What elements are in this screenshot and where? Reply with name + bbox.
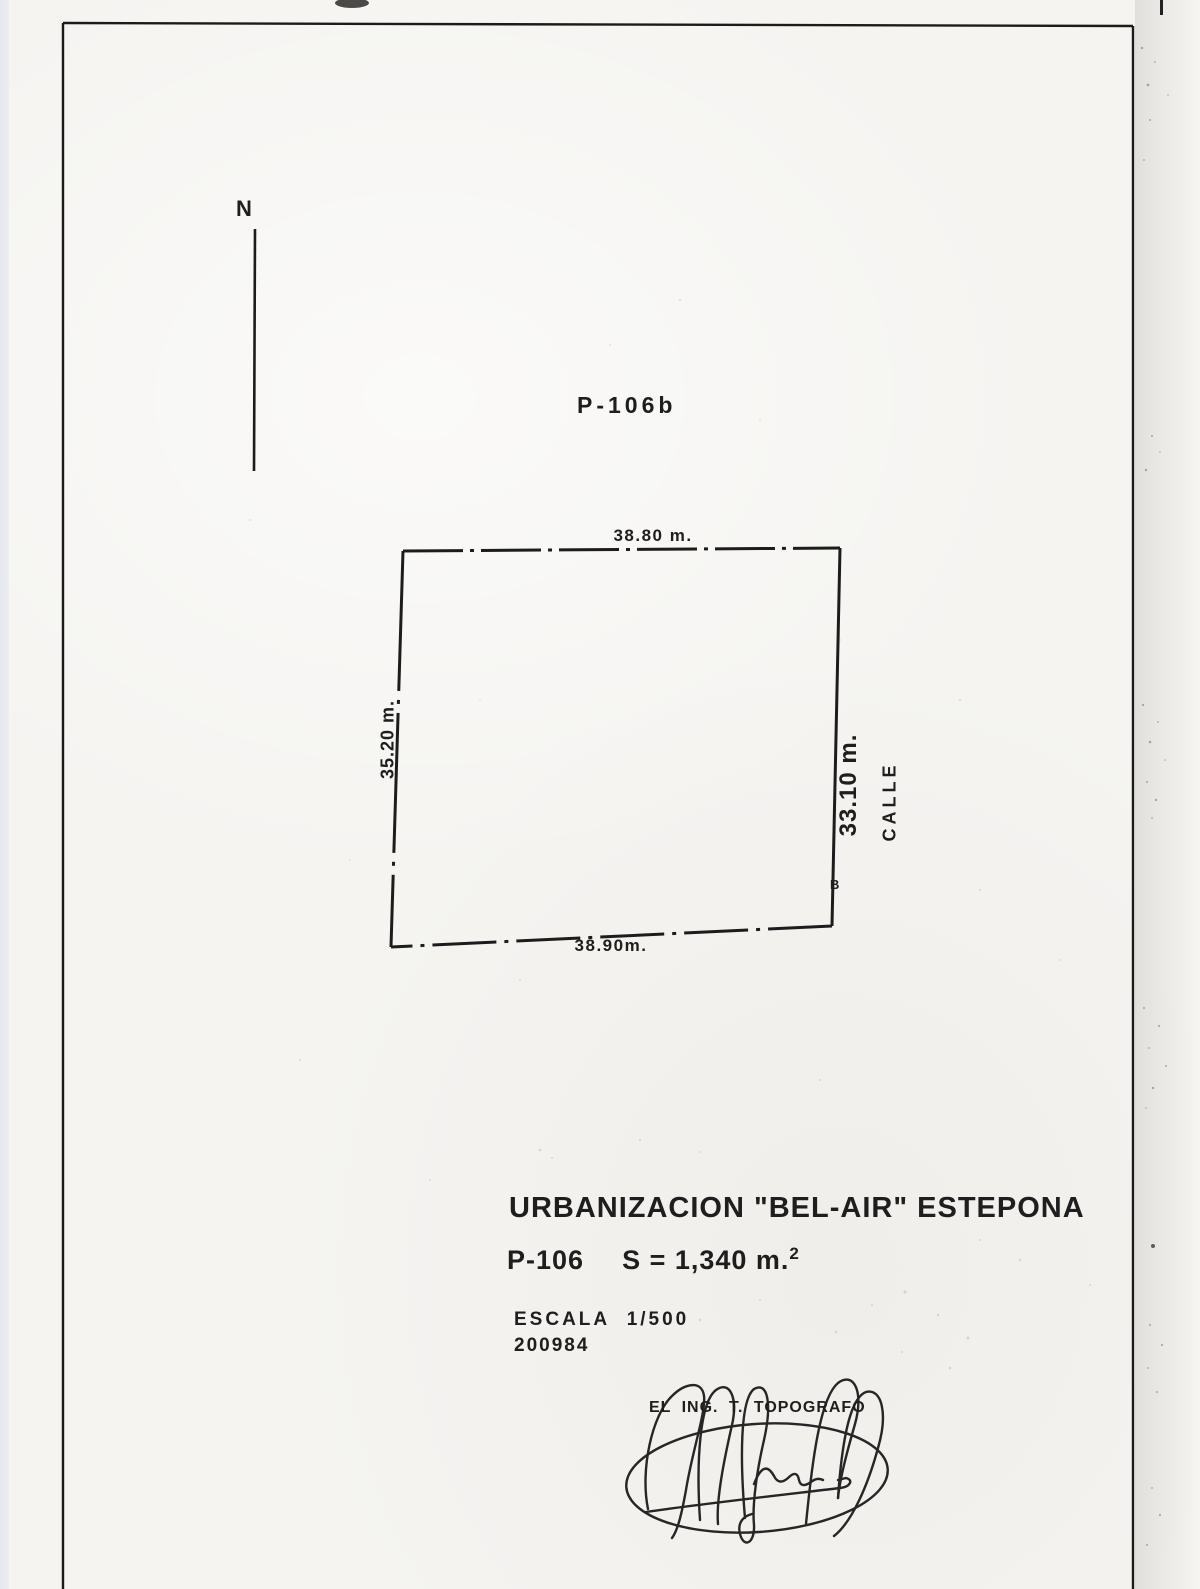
parcel-number: P-106: [507, 1245, 584, 1275]
dimension-top: 38.80 m.: [598, 526, 708, 546]
north-label: N: [236, 196, 253, 222]
area-exponent: 2: [789, 1244, 799, 1263]
street-label: CALLE: [880, 747, 901, 857]
page-border: [63, 23, 1133, 1589]
plot-edge-top: [403, 548, 840, 551]
signer-title: EL ING. T. TOPOGRAFO: [649, 1399, 866, 1417]
north-arrow-line: [254, 229, 255, 471]
dimension-bottom: 38.90m.: [546, 936, 676, 956]
parcel-area-line: P-106S = 1,340 m.2: [507, 1245, 800, 1276]
dimension-left: 35.20 m.: [378, 685, 399, 795]
plot-outline: [391, 548, 840, 947]
plan-drawing: [0, 0, 1200, 1589]
scan-artifacts: [335, 0, 1163, 1248]
speckle-noise: [249, 47, 1169, 1546]
plan-code-label: P-106b: [577, 392, 676, 419]
corner-point-label: B: [830, 877, 839, 892]
scale-label: ESCALA 1/500: [514, 1309, 689, 1331]
plan-title: URBANIZACION "BEL-AIR" ESTEPONA: [509, 1192, 1085, 1225]
scanned-plan-page: { "page": { "north_label": "N", "plan_co…: [0, 0, 1200, 1589]
area-value: S = 1,340 m.: [622, 1245, 789, 1275]
date-code: 200984: [514, 1335, 589, 1357]
dimension-right: 33.10 m.: [835, 715, 863, 855]
